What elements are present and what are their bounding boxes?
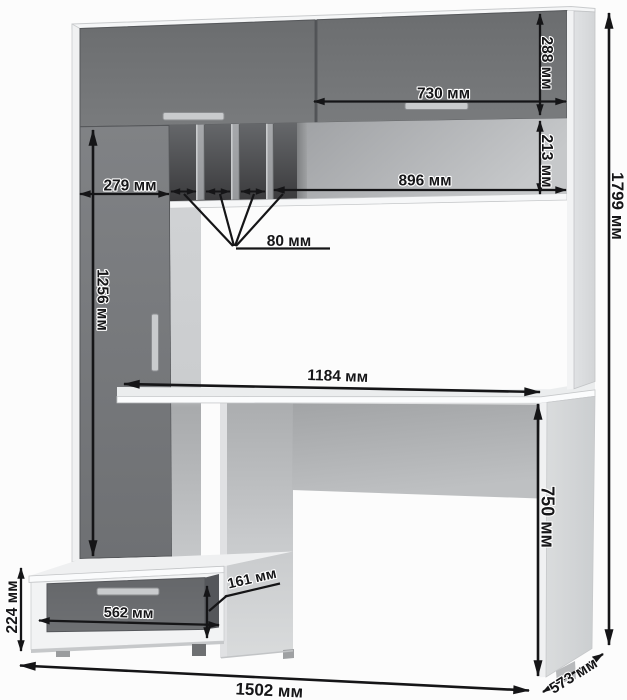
svg-text:1184 мм: 1184 мм (307, 367, 368, 386)
svg-text:213 мм: 213 мм (538, 134, 555, 187)
svg-text:1502 мм: 1502 мм (235, 679, 304, 700)
svg-text:1799 мм: 1799 мм (608, 172, 627, 240)
svg-text:562 мм: 562 мм (104, 605, 154, 622)
svg-text:730 мм: 730 мм (417, 86, 470, 103)
svg-text:288 мм: 288 мм (538, 36, 555, 89)
svg-text:1256 мм: 1256 мм (94, 269, 111, 331)
svg-text:80 мм: 80 мм (267, 233, 311, 250)
svg-text:279 мм: 279 мм (103, 178, 156, 195)
svg-text:224 мм: 224 мм (4, 580, 21, 633)
svg-text:750 мм: 750 мм (538, 486, 558, 548)
svg-text:896 мм: 896 мм (398, 173, 451, 190)
